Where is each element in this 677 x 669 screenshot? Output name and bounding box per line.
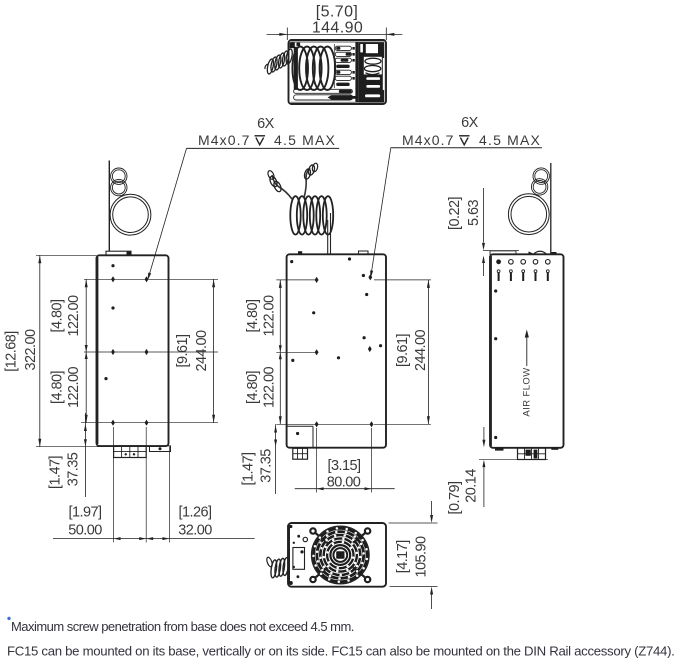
svg-text:[0.79]: [0.79]	[447, 482, 463, 515]
svg-text:105.90: 105.90	[413, 536, 429, 578]
svg-text:37.35: 37.35	[258, 449, 274, 483]
svg-text:[4.80]: [4.80]	[245, 371, 261, 404]
svg-text:[1.26]: [1.26]	[179, 505, 212, 521]
svg-text:80.00: 80.00	[327, 475, 361, 491]
svg-text:AIR FLOW: AIR FLOW	[522, 367, 533, 416]
svg-text:M4x0.7: M4x0.7	[198, 132, 251, 148]
svg-text:[4.80]: [4.80]	[49, 300, 65, 333]
svg-text:6X: 6X	[257, 116, 275, 132]
svg-text:[3.15]: [3.15]	[328, 458, 361, 474]
svg-text:32.00: 32.00	[178, 523, 212, 539]
svg-text:122.00: 122.00	[66, 295, 82, 337]
svg-text:122.00: 122.00	[261, 295, 277, 337]
svg-text:20.14: 20.14	[463, 469, 479, 503]
svg-text:[12.68]: [12.68]	[3, 331, 19, 372]
svg-text:244.00: 244.00	[194, 330, 210, 372]
svg-text:[5.70]: [5.70]	[316, 4, 358, 21]
svg-text:4.5 MAX: 4.5 MAX	[274, 132, 336, 148]
svg-text:[4.80]: [4.80]	[49, 371, 65, 404]
svg-text:244.00: 244.00	[413, 329, 429, 371]
svg-text:[4.80]: [4.80]	[245, 300, 261, 333]
svg-text:[1.47]: [1.47]	[47, 456, 63, 489]
svg-text:122.00: 122.00	[66, 366, 82, 408]
svg-text:6X: 6X	[461, 115, 479, 131]
svg-text:322.00: 322.00	[23, 329, 39, 371]
svg-text:144.90: 144.90	[312, 20, 363, 37]
svg-text:[4.17]: [4.17]	[395, 540, 411, 573]
svg-text:Maximum screw penetration from: Maximum screw penetration from base does…	[11, 619, 354, 634]
svg-text:[9.61]: [9.61]	[395, 334, 411, 367]
svg-text:M4x0.7: M4x0.7	[402, 132, 455, 148]
svg-text:122.00: 122.00	[261, 366, 277, 408]
svg-text:37.35: 37.35	[65, 452, 81, 486]
svg-text:[9.61]: [9.61]	[175, 335, 191, 368]
svg-text:5.63: 5.63	[466, 200, 482, 227]
svg-text:FC15 can be mounted on its bas: FC15 can be mounted on its base, vertica…	[7, 644, 675, 659]
svg-text:50.00: 50.00	[68, 523, 102, 539]
svg-text:[1.47]: [1.47]	[240, 453, 256, 486]
svg-text:4.5 MAX: 4.5 MAX	[479, 132, 541, 148]
svg-text:[1.97]: [1.97]	[69, 505, 102, 521]
svg-text:[0.22]: [0.22]	[447, 197, 463, 230]
